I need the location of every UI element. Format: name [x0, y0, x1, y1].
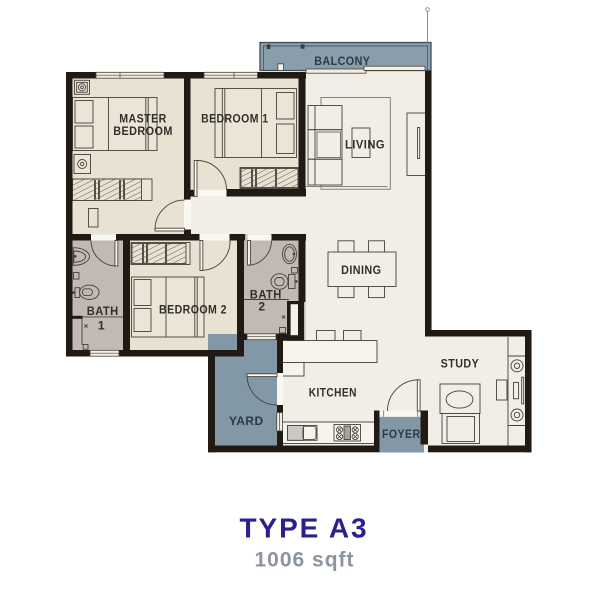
svg-text:BEDROOM 2: BEDROOM 2 [159, 303, 227, 317]
svg-text:TYPE A3: TYPE A3 [240, 513, 369, 544]
svg-text:LIVING: LIVING [345, 137, 385, 151]
svg-text:1: 1 [98, 319, 105, 333]
svg-text:BALCONY: BALCONY [314, 54, 370, 68]
svg-text:BATH: BATH [87, 304, 119, 318]
svg-text:BEDROOM 1: BEDROOM 1 [201, 111, 268, 125]
svg-text:KITCHEN: KITCHEN [309, 385, 357, 399]
svg-text:YARD: YARD [229, 414, 264, 428]
svg-text:BEDROOM: BEDROOM [113, 124, 173, 138]
svg-text:FOYER: FOYER [382, 427, 421, 441]
svg-text:1006 sqft: 1006 sqft [254, 549, 354, 572]
svg-text:DINING: DINING [341, 263, 381, 277]
svg-text:STUDY: STUDY [441, 357, 480, 371]
svg-text:BATH: BATH [250, 287, 282, 301]
svg-text:2: 2 [258, 300, 265, 314]
